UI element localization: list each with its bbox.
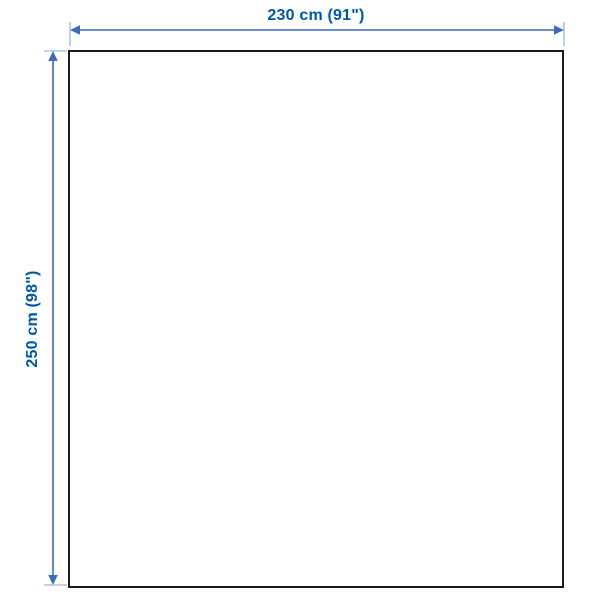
dimension-diagram: 230 cm (91") 250 cm (98") (0, 0, 600, 600)
width-dimension (70, 22, 564, 46)
arrow-left-icon (70, 25, 80, 35)
dimension-lines (0, 0, 600, 600)
height-dimension (44, 51, 67, 585)
arrow-down-icon (48, 575, 58, 585)
height-dimension-label: 250 cm (98") (24, 239, 44, 399)
width-dimension-label: 230 cm (91") (68, 7, 564, 25)
arrow-right-icon (554, 25, 564, 35)
arrow-up-icon (48, 51, 58, 61)
